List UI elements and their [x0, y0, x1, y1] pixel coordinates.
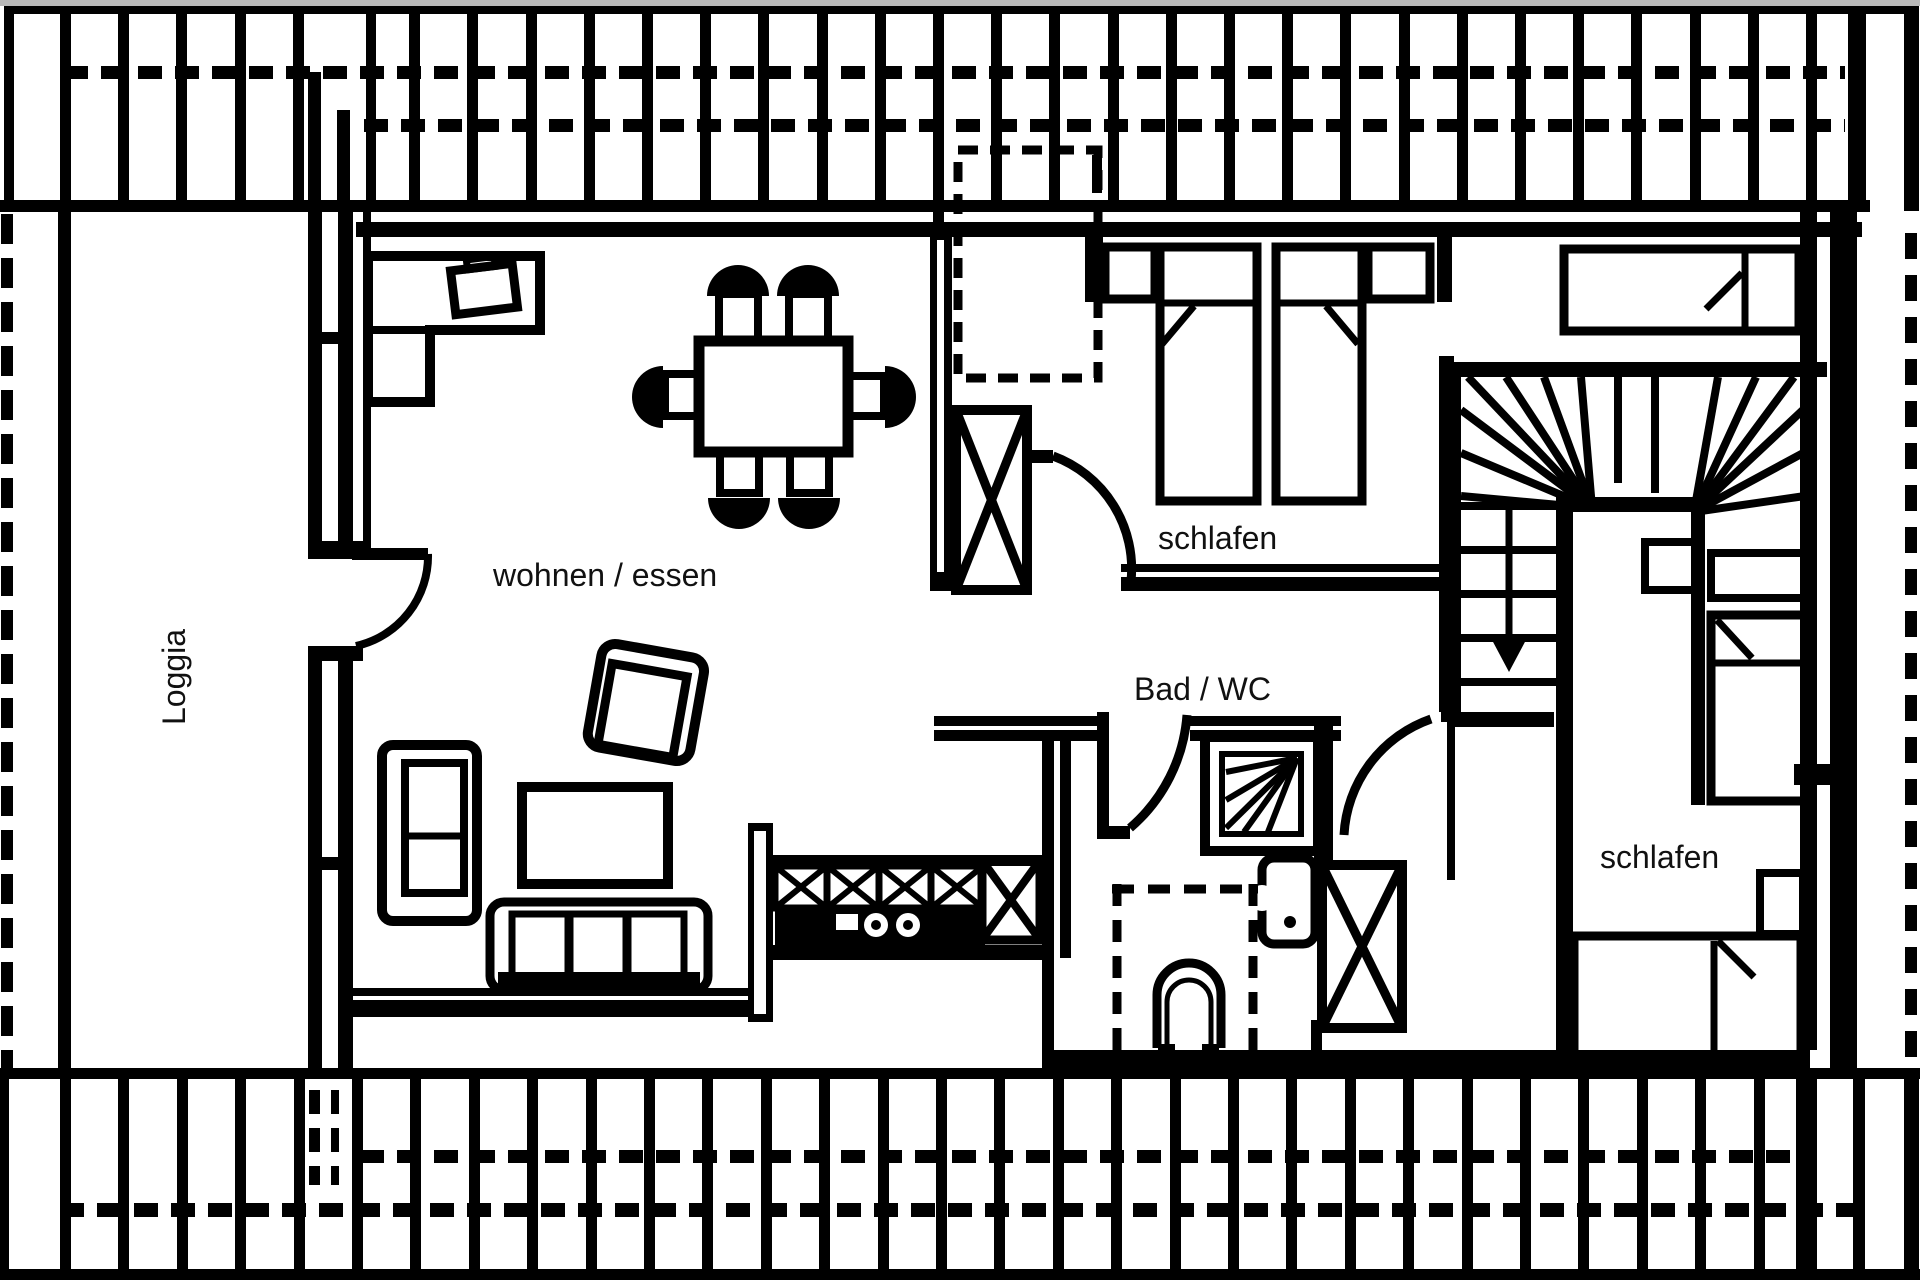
svg-text:schlafen: schlafen	[1158, 520, 1277, 556]
svg-text:Bad / WC: Bad / WC	[1134, 671, 1271, 707]
svg-text:wohnen / essen: wohnen / essen	[492, 557, 717, 593]
svg-text:schlafen: schlafen	[1600, 839, 1719, 875]
svg-text:Loggia: Loggia	[156, 629, 192, 725]
